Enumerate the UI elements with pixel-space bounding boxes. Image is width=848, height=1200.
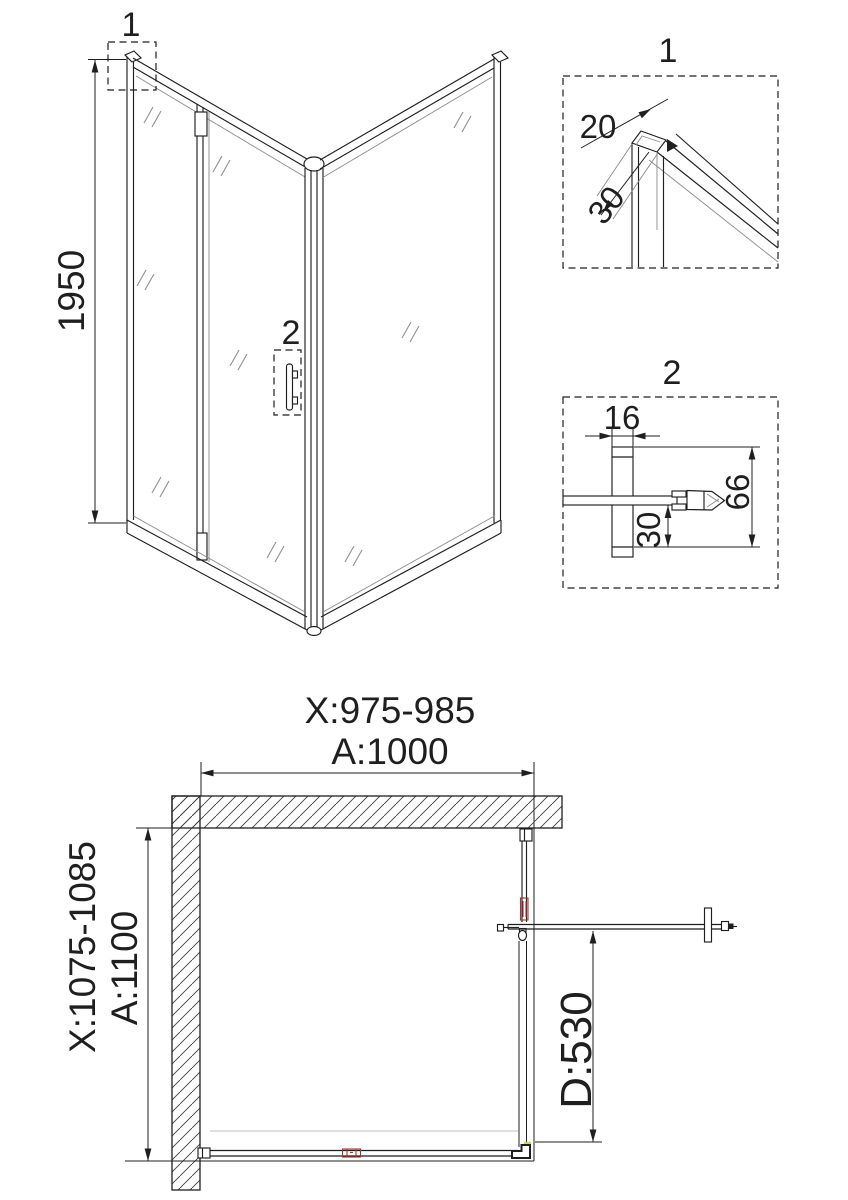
- detail-1-dim-30: 30: [580, 144, 658, 231]
- dimension-1950: 1950: [51, 60, 126, 524]
- right-edge-profile: [492, 51, 508, 523]
- detail-2-dim-16: 16: [585, 399, 660, 447]
- bottom-panel-plan: [198, 1131, 531, 1158]
- door-handle-plan: [705, 908, 712, 942]
- door-edge-profile: [722, 922, 729, 931]
- dim-a-depth-label: A:1100: [104, 911, 145, 1026]
- door-handle-3d: [287, 364, 298, 410]
- technical-drawing: 1950 1 2 1: [0, 0, 848, 1200]
- wall-profile-top: [520, 829, 532, 841]
- dim-a-width-label: A:1000: [331, 731, 448, 772]
- detail-1-frame: [563, 76, 778, 268]
- detail-2-dim-30: 30: [630, 506, 671, 549]
- dim-20-label: 20: [580, 108, 617, 145]
- callout-1-label: 1: [122, 6, 141, 44]
- door-open-plan: [508, 908, 737, 942]
- wall-bracket-left: [198, 1148, 210, 1158]
- dim-1950-label: 1950: [51, 250, 92, 332]
- corner-post: [304, 157, 324, 636]
- dim-d-door-label: D:530: [552, 991, 601, 1108]
- dim-x-depth-label: X:1075-1085: [62, 841, 103, 1053]
- pivot-pin: [519, 931, 527, 941]
- bottom-rail-right: [321, 516, 501, 630]
- detail-view-2: 2 16 66: [563, 354, 778, 588]
- bottom-rail-left: [127, 516, 307, 630]
- drawing-sheet: 1950 1 2 1: [0, 0, 848, 1200]
- detail-view-1: 1 20 30: [563, 32, 778, 268]
- dim-16-label: 16: [604, 399, 641, 436]
- top-rail-right: [320, 59, 494, 178]
- wall-left: [172, 796, 200, 1190]
- dim-66-label: 66: [719, 474, 756, 511]
- dim-x-width-label: X:975-985: [305, 690, 476, 731]
- door-side-plan: [498, 829, 738, 1147]
- left-wall-profile: [125, 51, 141, 523]
- detail-2-title: 2: [663, 354, 682, 392]
- door-hinge-profile: [195, 104, 209, 562]
- detail-2-handle-rail: [563, 491, 725, 511]
- corner-bracket: [512, 1145, 530, 1158]
- callout-2-label: 2: [282, 314, 301, 352]
- detail-1-title: 1: [659, 32, 678, 70]
- dimension-door: D:530: [535, 931, 602, 1142]
- callout-1: 1: [108, 6, 156, 90]
- dim-30-label: 30: [580, 179, 632, 231]
- wall-top: [172, 796, 562, 828]
- glass-shine-marks: [137, 107, 471, 566]
- plan-view: X:975-985 A:1000 X:1075-1085 A:1100: [62, 690, 737, 1190]
- dim-30-offset-label: 30: [630, 512, 667, 549]
- perspective-view: 1950 1 2: [51, 6, 508, 636]
- pivot-hardware: [498, 925, 504, 932]
- detail-1-profile: [632, 131, 778, 267]
